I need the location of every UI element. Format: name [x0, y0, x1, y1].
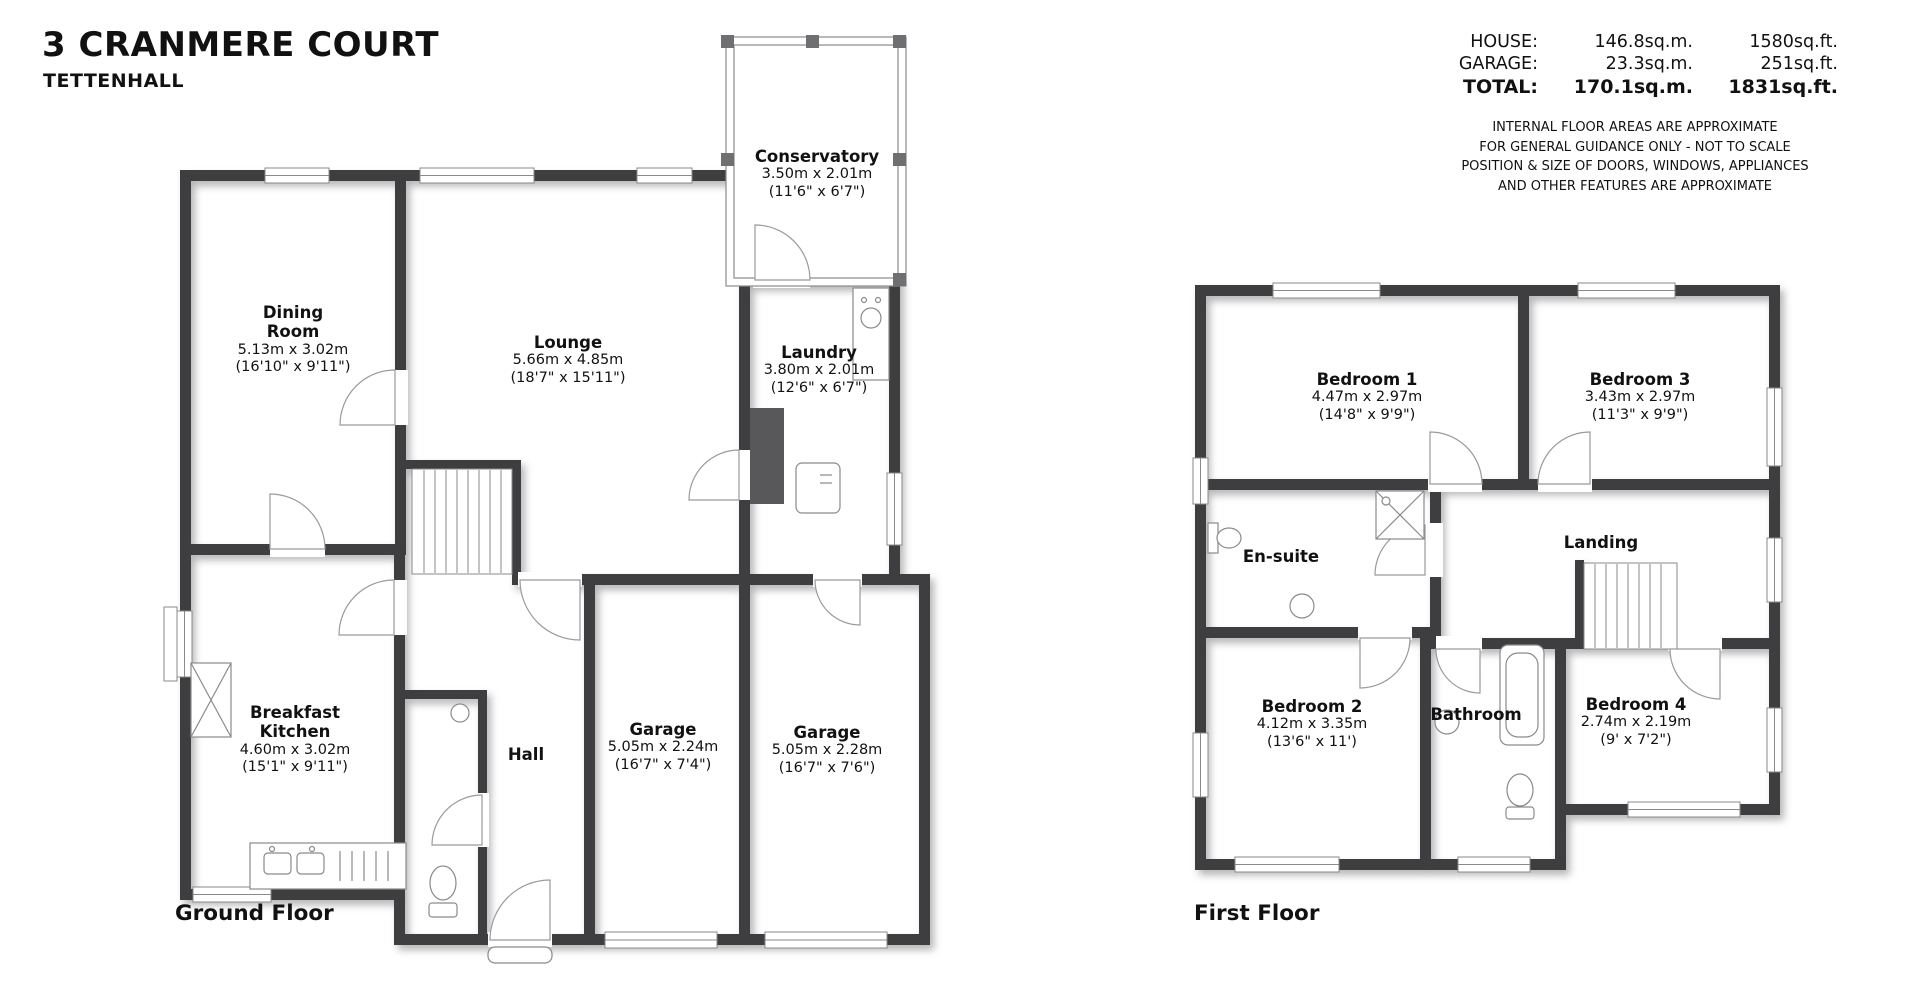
- first-stairs: [1584, 563, 1677, 649]
- total-label: TOTAL:: [1423, 76, 1538, 98]
- room-label-landing: Landing: [1564, 533, 1638, 552]
- room-label-bedroom-2: Bedroom 2 4.12m x 3.35m (13'6" x 11'): [1257, 697, 1368, 751]
- first-floor-drawing: [1180, 275, 1820, 955]
- wc-toilet: [430, 866, 456, 900]
- room-dims-imperial: (12'6" x 6'7"): [764, 380, 875, 397]
- room-name: Laundry: [764, 343, 875, 362]
- room-name: Garage: [608, 720, 719, 739]
- room-dims-metric: 3.80m x 2.01m: [764, 362, 875, 379]
- total-sqft: 1831sq.ft.: [1693, 76, 1838, 98]
- room-label-bedroom-1: Bedroom 1 4.47m x 2.97m (14'8" x 9'9"): [1312, 370, 1423, 424]
- room-label-breakfast-kitchen: Breakfast Kitchen 4.60m x 3.02m (15'1" x…: [240, 703, 351, 776]
- ensuite-sink: [1290, 594, 1314, 618]
- room-label-garage-1: Garage 5.05m x 2.24m (16'7" x 7'4"): [608, 720, 719, 774]
- garage-label: GARAGE:: [1423, 54, 1538, 74]
- ground-floor-plan: Dining Room 5.13m x 3.02m (16'10" x 9'11…: [160, 35, 950, 970]
- room-dims-imperial: (11'3" x 9'9"): [1585, 407, 1696, 424]
- room-label-bathroom: Bathroom: [1430, 705, 1521, 724]
- room-name: Dining Room: [235, 303, 350, 342]
- room-label-ensuite: En-suite: [1243, 547, 1319, 566]
- room-dims-imperial: (15'1" x 9'11"): [240, 759, 351, 776]
- room-label-bedroom-4: Bedroom 4 2.74m x 2.19m (9' x 7'2"): [1581, 695, 1692, 749]
- room-label-hall: Hall: [508, 745, 544, 764]
- house-label: HOUSE:: [1423, 32, 1538, 52]
- room-name: Lounge: [510, 333, 625, 352]
- room-dims-imperial: (13'6" x 11'): [1257, 734, 1368, 751]
- room-dims-metric: 3.50m x 2.01m: [755, 166, 879, 183]
- room-dims-imperial: (11'6" x 6'7"): [755, 184, 879, 201]
- room-name: Breakfast Kitchen: [240, 703, 351, 742]
- garage-sqm: 23.3sq.m.: [1538, 54, 1693, 74]
- disclaimer-line-4: AND OTHER FEATURES ARE APPROXIMATE: [1420, 177, 1850, 197]
- room-dims-metric: 4.12m x 3.35m: [1257, 716, 1368, 733]
- first-floor-caption: First Floor: [1194, 901, 1319, 926]
- ground-stairs: [412, 469, 512, 574]
- room-name: Bedroom 3: [1585, 370, 1696, 389]
- room-dims-metric: 4.60m x 3.02m: [240, 742, 351, 759]
- room-dims-imperial: (16'7" x 7'6"): [772, 760, 883, 777]
- room-name: Hall: [508, 745, 544, 764]
- room-label-bedroom-3: Bedroom 3 3.43m x 2.97m (11'3" x 9'9"): [1585, 370, 1696, 424]
- disclaimer-line-1: INTERNAL FLOOR AREAS ARE APPROXIMATE: [1420, 118, 1850, 138]
- first-floor-plan: Bedroom 1 4.47m x 2.97m (14'8" x 9'9") B…: [1180, 275, 1820, 955]
- room-dims-imperial: (16'7" x 7'4"): [608, 757, 719, 774]
- room-dims-imperial: (18'7" x 15'11"): [510, 370, 625, 387]
- house-sqm: 146.8sq.m.: [1538, 32, 1693, 52]
- room-dims-imperial: (9' x 7'2"): [1581, 732, 1692, 749]
- room-dims-metric: 5.66m x 4.85m: [510, 352, 625, 369]
- room-name: Garage: [772, 723, 883, 742]
- room-name: Bedroom 2: [1257, 697, 1368, 716]
- room-dims-imperial: (14'8" x 9'9"): [1312, 407, 1423, 424]
- room-name: Bathroom: [1430, 705, 1521, 724]
- room-label-dining: Dining Room 5.13m x 3.02m (16'10" x 9'11…: [235, 303, 350, 376]
- disclaimer: INTERNAL FLOOR AREAS ARE APPROXIMATE FOR…: [1420, 118, 1850, 196]
- ground-floor-caption: Ground Floor: [175, 901, 334, 926]
- room-dims-metric: 2.74m x 2.19m: [1581, 714, 1692, 731]
- room-dims-imperial: (16'10" x 9'11"): [235, 359, 350, 376]
- garage-sqft: 251sq.ft.: [1693, 54, 1838, 74]
- disclaimer-line-2: FOR GENERAL GUIDANCE ONLY - NOT TO SCALE: [1420, 138, 1850, 158]
- floorplan-page: { "header": {"title": "3 CRANMERE COURT"…: [0, 0, 1920, 1002]
- room-label-garage-2: Garage 5.05m x 2.28m (16'7" x 7'6"): [772, 723, 883, 777]
- room-name: En-suite: [1243, 547, 1319, 566]
- room-label-lounge: Lounge 5.66m x 4.85m (18'7" x 15'11"): [510, 333, 625, 387]
- room-dims-metric: 5.05m x 2.28m: [772, 742, 883, 759]
- room-name: Bedroom 4: [1581, 695, 1692, 714]
- front-porch-step: [488, 947, 552, 963]
- wc-sink: [451, 704, 469, 722]
- room-dims-metric: 4.47m x 2.97m: [1312, 389, 1423, 406]
- laundry-boiler: [796, 463, 840, 513]
- area-summary: HOUSE: 146.8sq.m. 1580sq.ft. GARAGE: 23.…: [1423, 32, 1838, 98]
- room-dims-metric: 5.13m x 3.02m: [235, 342, 350, 359]
- house-sqft: 1580sq.ft.: [1693, 32, 1838, 52]
- laundry-appliance: [750, 408, 784, 504]
- room-name: Bedroom 1: [1312, 370, 1423, 389]
- room-dims-metric: 3.43m x 2.97m: [1585, 389, 1696, 406]
- room-dims-metric: 5.05m x 2.24m: [608, 739, 719, 756]
- room-label-conservatory: Conservatory 3.50m x 2.01m (11'6" x 6'7"…: [755, 147, 879, 201]
- room-name: Conservatory: [755, 147, 879, 166]
- total-sqm: 170.1sq.m.: [1538, 76, 1693, 98]
- room-name: Landing: [1564, 533, 1638, 552]
- ensuite-toilet: [1217, 528, 1241, 548]
- room-label-laundry: Laundry 3.80m x 2.01m (12'6" x 6'7"): [764, 343, 875, 397]
- disclaimer-line-3: POSITION & SIZE OF DOORS, WINDOWS, APPLI…: [1420, 157, 1850, 177]
- bathroom-toilet: [1507, 774, 1533, 806]
